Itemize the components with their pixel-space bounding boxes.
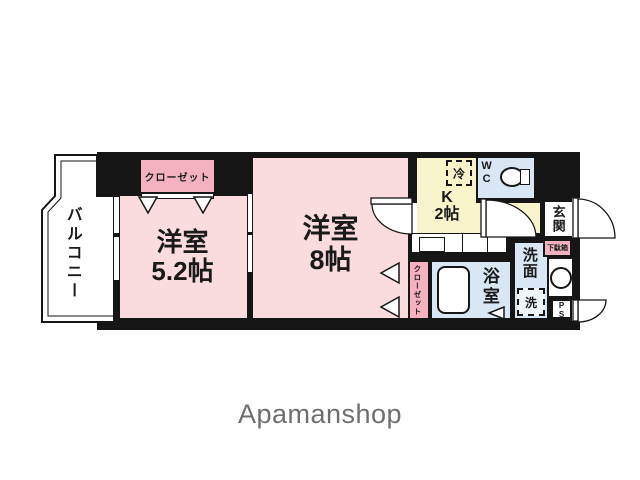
room-8-name: 洋室 bbox=[253, 214, 408, 243]
kitchen-size: 2帖 bbox=[417, 207, 477, 224]
kitchen-name: K bbox=[417, 190, 477, 207]
hallway-door-swing bbox=[481, 199, 536, 237]
pipe-space-label: PS bbox=[557, 301, 565, 319]
room-8-size: 8帖 bbox=[253, 246, 408, 274]
bath-label: 浴室 bbox=[480, 267, 498, 307]
entrance-label: 玄関 bbox=[551, 205, 565, 233]
room-5_2-name: 洋室 bbox=[118, 229, 247, 256]
washroom-label: 洗面 bbox=[521, 247, 537, 279]
closet-side-label: クローゼット bbox=[413, 265, 421, 316]
closet-top-fold-door-marks bbox=[139, 197, 212, 213]
balcony-label: バルコニー bbox=[63, 188, 80, 318]
entrance-door-swing bbox=[573, 198, 615, 238]
bath-door-mark bbox=[489, 307, 504, 319]
floorplan-canvas: クローゼット 冷 洗 下駄箱 bbox=[0, 0, 640, 480]
wc-label: WC bbox=[480, 160, 492, 186]
ps-door-swing bbox=[573, 300, 606, 322]
room-5_2-size: 5.2帖 bbox=[114, 258, 251, 285]
